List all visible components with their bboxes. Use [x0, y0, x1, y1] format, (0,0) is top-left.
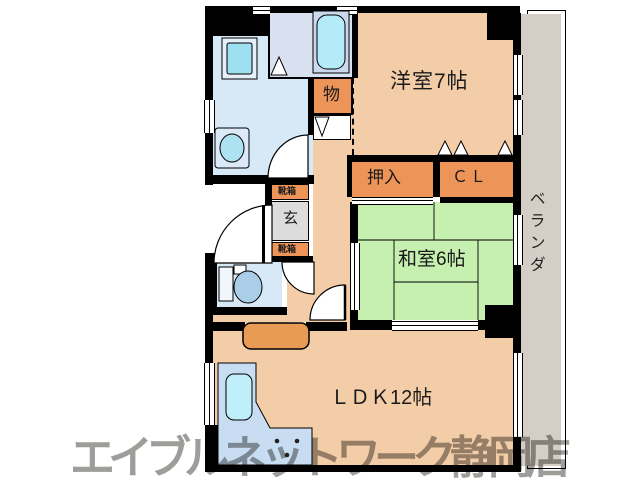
wall [270, 6, 337, 13]
wall [205, 256, 313, 262]
wall [347, 155, 520, 162]
room-label-entrance: 玄 [283, 211, 298, 228]
window [204, 363, 215, 425]
wall [485, 305, 517, 338]
toilet-room-area [217, 262, 282, 307]
storage-door [313, 115, 351, 140]
room-label-western: 洋室7帖 [390, 70, 469, 93]
sliding-door [392, 321, 478, 331]
wall [347, 162, 352, 197]
wall [205, 36, 213, 100]
wall [306, 322, 347, 331]
wall [205, 13, 268, 36]
room-label-japanese: 和室6帖 [398, 250, 466, 271]
wall [205, 253, 217, 315]
wall [205, 175, 314, 184]
wall [513, 135, 521, 215]
wall [357, 6, 520, 13]
wall [433, 162, 440, 197]
entrance-door-arc [214, 205, 272, 263]
room-label-storage: 物 [323, 86, 340, 105]
wall [268, 13, 270, 77]
room-label-ldk: ＬＤＫ12帖 [330, 387, 432, 409]
window [337, 6, 357, 15]
wall [205, 6, 253, 13]
wall [487, 13, 521, 40]
wall [205, 322, 245, 331]
wall [268, 77, 352, 79]
sliding-door [352, 197, 433, 205]
window [513, 100, 523, 135]
wall [350, 202, 358, 243]
veranda-label: ベランダ [526, 190, 544, 278]
room-label-cl: ＣＬ [452, 169, 488, 187]
wall [308, 77, 314, 135]
shoe-box-label: 靴箱 [278, 187, 296, 197]
window [204, 100, 215, 133]
wall [440, 197, 513, 203]
hallway-area-2 [287, 258, 313, 322]
bathroom-area [268, 13, 352, 77]
window [513, 55, 523, 95]
shoe-box-label: 靴箱 [278, 245, 296, 255]
wall [352, 13, 358, 78]
room-label-oshiire: 押入 [367, 169, 401, 188]
window [513, 215, 523, 265]
watermark-text: エイブルネットワーク静岡店 [70, 421, 564, 480]
window [253, 6, 270, 15]
wall [350, 320, 392, 330]
sliding-door [350, 243, 360, 310]
wall [205, 307, 287, 315]
dashed-wall [352, 78, 354, 155]
floor-plan: 洋室7帖 押入 ＣＬ 和室6帖 ＬＤＫ12帖 物 玄 靴箱 靴箱 ベランダ エイ… [0, 0, 640, 480]
wall [265, 184, 272, 260]
